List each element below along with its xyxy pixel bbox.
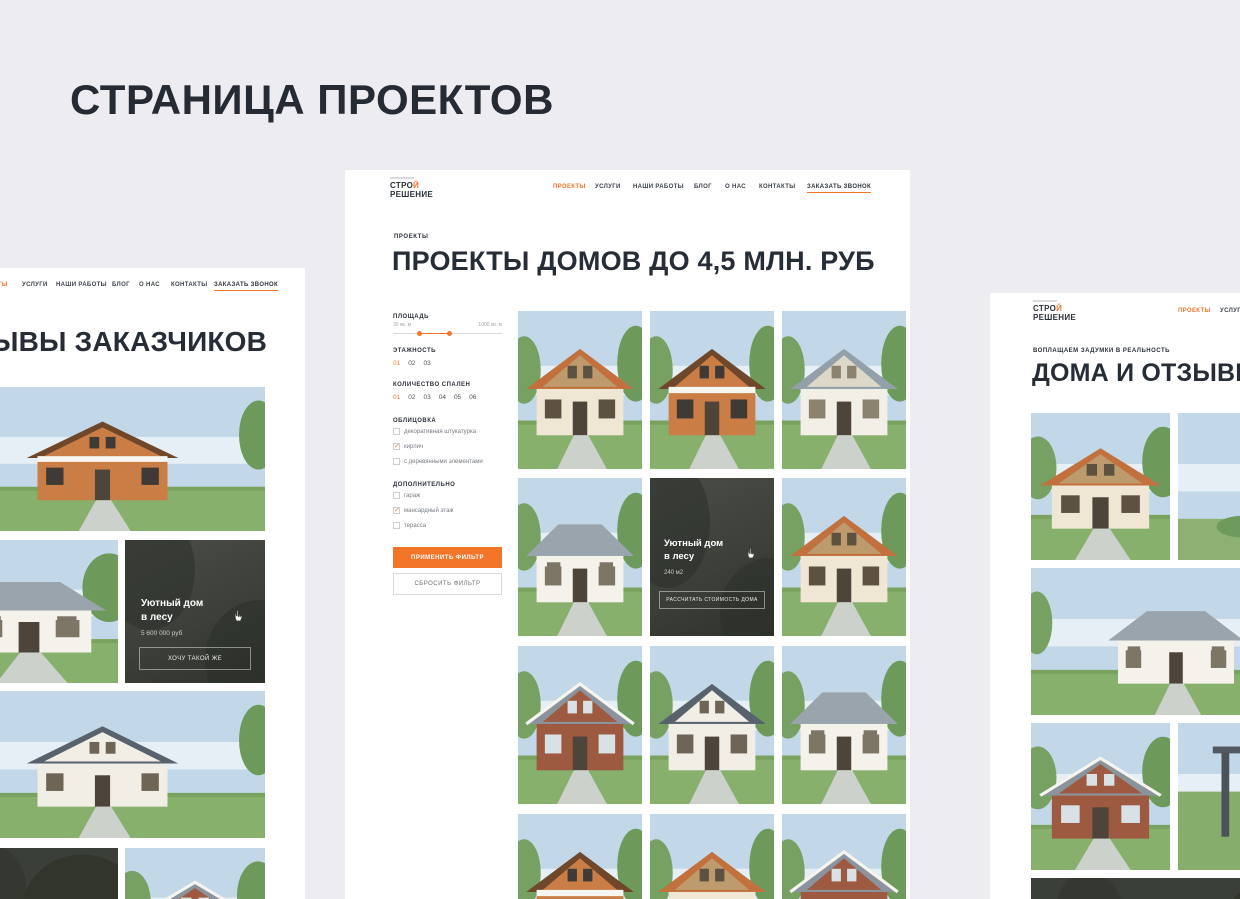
filter-bedrooms-label: КОЛИЧЕСТВО СПАЛЕН: [393, 382, 470, 388]
reviews-page-title: ОТЗЫВЫ ЗАКАЗЧИКОВ: [0, 326, 267, 358]
area-slider-handle-max[interactable]: [447, 331, 452, 336]
calc-cost-button[interactable]: РАССЧИТАТЬ СТОИМОСТЬ ДОМА: [659, 591, 765, 609]
filter-facing-label: ОБЛИЦОВКА: [393, 418, 436, 424]
area-min-label: 30 кв. м: [393, 322, 411, 328]
checkbox-unchecked: [393, 458, 400, 465]
nav-item-projects[interactable]: ПРОЕКТЫ: [1178, 308, 1211, 314]
project-photo-white2[interactable]: [518, 478, 642, 636]
nav-item-works[interactable]: НАШИ РАБОТЫ: [56, 282, 107, 288]
floors-options: 01 02 03: [393, 360, 431, 367]
floors-option-03[interactable]: 03: [423, 360, 430, 367]
bedrooms-option-06[interactable]: 06: [469, 394, 476, 401]
logo-tagline: [390, 177, 414, 179]
nav-item-about[interactable]: О НАС: [725, 184, 746, 190]
checkbox-unchecked: [393, 492, 400, 499]
card-title-line2: в лесу: [664, 551, 694, 562]
nav-cta-call[interactable]: ЗАКАЗАТЬ ЗВОНОК: [807, 184, 871, 193]
checkbox-row-attic[interactable]: ✓ мансардный этаж: [393, 507, 453, 514]
houses-page-title: ДОМА И ОТЗЫВЫ: [1032, 359, 1240, 388]
logo-tagline: [1033, 300, 1057, 302]
checkbox-row-wood-elements[interactable]: с деревянными элементами: [393, 458, 483, 465]
nav-item-about[interactable]: О НАС: [139, 282, 160, 288]
area-max-label: 1000 кв. м: [478, 322, 502, 328]
area-slider-active-range: [419, 333, 449, 334]
nav-item-services[interactable]: УСЛУГИ: [1220, 308, 1240, 314]
mockup-right: СТРОЙ РЕШЕНИЕ ПРОЕКТЫ УСЛУГИ ВОПЛАЩАЕМ З…: [990, 293, 1240, 899]
projects-page-title: ПРОЕКТЫ ДОМОВ ДО 4,5 МЛН. РУБ: [392, 246, 875, 277]
page-title: СТРАНИЦА ПРОЕКТОВ: [70, 76, 554, 124]
nav-item-services[interactable]: УСЛУГИ: [595, 184, 621, 190]
bedrooms-option-04[interactable]: 04: [439, 394, 446, 401]
project-photo-dark[interactable]: [0, 848, 118, 899]
bedrooms-option-03[interactable]: 03: [423, 394, 430, 401]
checkbox-unchecked: [393, 522, 400, 529]
card-area: 240 м2: [664, 570, 683, 576]
nav-item-blog[interactable]: БЛОГ: [112, 282, 130, 288]
project-card-hovered[interactable]: Уютный дом в лесу 240 м2 РАССЧИТАТЬ СТОИ…: [650, 478, 774, 636]
bedrooms-option-05[interactable]: 05: [454, 394, 461, 401]
mockup-center: СТРОЙ РЕШЕНИЕ ПРОЕКТЫ УСЛУГИ НАШИ РАБОТЫ…: [345, 170, 910, 899]
brand-logo[interactable]: СТРОЙ РЕШЕНИЕ: [1033, 304, 1076, 322]
project-photo-wood[interactable]: [0, 387, 265, 531]
card-title-line2: в лесу: [141, 612, 173, 623]
breadcrumb[interactable]: ПРОЕКТЫ: [394, 234, 428, 240]
filter-area-label: ПЛОЩАДЬ: [393, 314, 429, 320]
filter-extra-label: ДОПОЛНИТЕЛЬНО: [393, 482, 455, 488]
project-photo-white2[interactable]: [0, 540, 118, 683]
floors-option-01[interactable]: 01: [393, 360, 400, 367]
houses-page-subtitle: ВОПЛАЩАЕМ ЗАДУМКИ В РЕАЛЬНОСТЬ: [1033, 348, 1170, 354]
checkbox-row-garage[interactable]: гараж: [393, 492, 420, 499]
nav-item-services[interactable]: УСЛУГИ: [22, 282, 48, 288]
project-photo-brick[interactable]: [1031, 723, 1170, 870]
brand-logo[interactable]: СТРОЙ РЕШЕНИЕ: [390, 181, 433, 199]
project-photo-terra[interactable]: [650, 814, 774, 899]
project-photo-wood[interactable]: [518, 814, 642, 899]
project-photo-white2[interactable]: [782, 646, 906, 804]
apply-filter-button[interactable]: ПРИМЕНИТЬ ФИЛЬТР: [393, 547, 502, 568]
project-photo-grayroof[interactable]: [782, 311, 906, 469]
project-photo-whitedark[interactable]: [0, 691, 265, 838]
area-slider-track[interactable]: [393, 333, 502, 334]
nav-cta-call[interactable]: ЗАКАЗАТЬ ЗВОНОК: [214, 282, 278, 291]
filter-floors-label: ЭТАЖНОСТЬ: [393, 348, 436, 354]
floors-option-02[interactable]: 02: [408, 360, 415, 367]
project-photo-whitedark[interactable]: [650, 646, 774, 804]
checkbox-unchecked: [393, 428, 400, 435]
project-photo-terra[interactable]: [1031, 413, 1170, 560]
checkbox-checked: ✓: [393, 507, 400, 514]
nav-item-contacts[interactable]: КОНТАКТЫ: [171, 282, 207, 288]
nav-item-blog[interactable]: БЛОГ: [694, 184, 712, 190]
nav-item-contacts[interactable]: КОНТАКТЫ: [759, 184, 795, 190]
design-canvas: СТРАНИЦА ПРОЕКТОВ ПРОЕКТЫ УСЛУГИ НАШИ РА…: [0, 0, 1240, 899]
mockup-left: ПРОЕКТЫ УСЛУГИ НАШИ РАБОТЫ БЛОГ О НАС КО…: [0, 268, 305, 899]
card-title-line1: Уютный дом: [664, 538, 723, 549]
area-slider-handle-min[interactable]: [417, 331, 422, 336]
nav-item-works[interactable]: НАШИ РАБОТЫ: [633, 184, 684, 190]
project-photo-dark[interactable]: [1031, 878, 1240, 899]
nav-item-projects[interactable]: ПРОЕКТЫ: [553, 184, 586, 190]
checkbox-row-terrace[interactable]: терасса: [393, 522, 426, 529]
project-photo-brick[interactable]: [518, 646, 642, 804]
reset-filter-button[interactable]: СБРОСИТЬ ФИЛЬТР: [393, 573, 502, 595]
bedrooms-options: 01 02 03 04 05 06: [393, 394, 476, 401]
card-price: 5 600 000 руб: [141, 630, 182, 637]
checkbox-row-stucco[interactable]: декоративная штукатурка: [393, 428, 476, 435]
project-photo-brick[interactable]: [782, 814, 906, 899]
project-photo-brick[interactable]: [125, 848, 265, 899]
want-same-button[interactable]: ХОЧУ ТАКОЙ ЖЕ: [139, 647, 251, 670]
bedrooms-option-01[interactable]: 01: [393, 394, 400, 401]
area-slider-range-labels: 30 кв. м 1000 кв. м: [393, 322, 502, 328]
project-card-hovered[interactable]: Уютный дом в лесу 5 600 000 руб ХОЧУ ТАК…: [125, 540, 265, 683]
checkbox-checked: ✓: [393, 443, 400, 450]
project-photo-terra[interactable]: [518, 311, 642, 469]
project-photo-white2[interactable]: [1031, 568, 1240, 715]
project-photo-landscape[interactable]: [1178, 413, 1240, 560]
bedrooms-option-02[interactable]: 02: [408, 394, 415, 401]
project-photo-terra[interactable]: [782, 478, 906, 636]
nav-item-projects[interactable]: ПРОЕКТЫ: [0, 282, 8, 288]
project-photo-wood[interactable]: [650, 311, 774, 469]
card-title-line1: Уютный дом: [141, 598, 203, 609]
project-photo-garden[interactable]: [1178, 723, 1240, 870]
checkbox-row-brick[interactable]: ✓ кирпич: [393, 443, 423, 450]
